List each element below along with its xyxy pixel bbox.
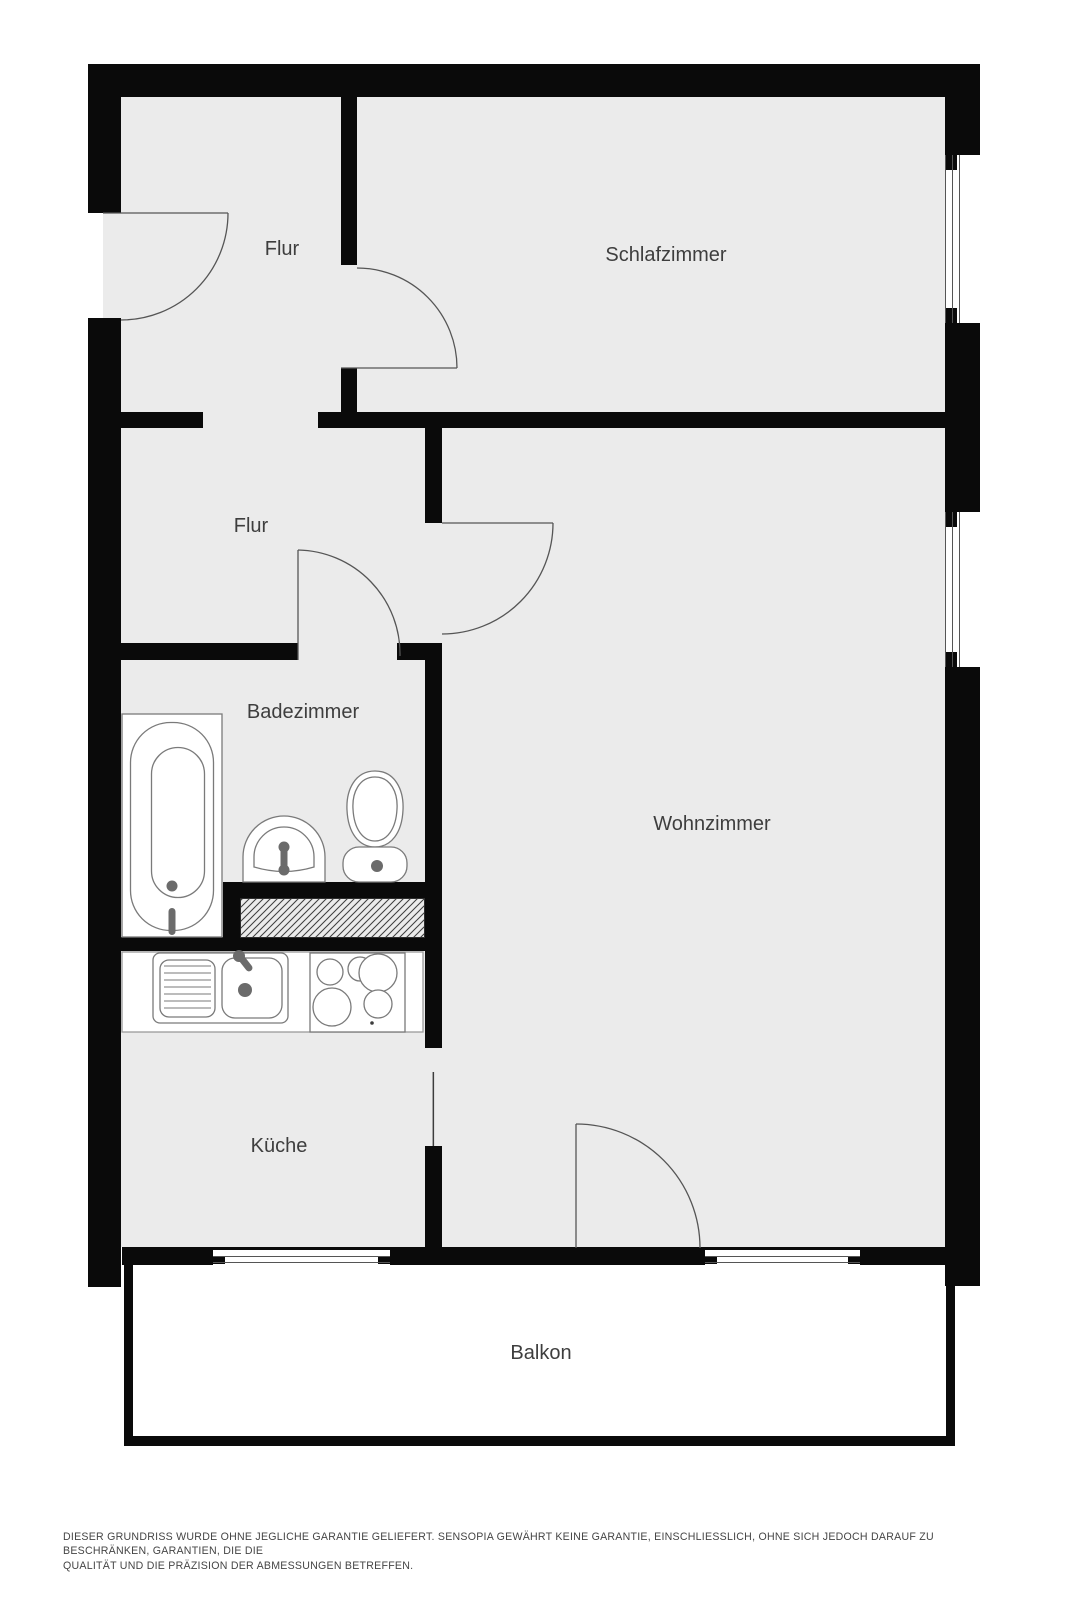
floorplan-canvas: Flur Schlafzimmer Flur Badezimmer Wohnzi…	[0, 0, 1067, 1600]
door-opening-wohnzimmer	[425, 523, 442, 643]
window-stub	[946, 308, 957, 323]
room-floor-flur	[121, 428, 425, 643]
kitchen-counter	[122, 950, 423, 1032]
room-label-wohnzimmer: Wohnzimmer	[653, 813, 771, 835]
door-opening-badezimmer	[298, 643, 397, 660]
room-floor-wohnzimmer	[442, 428, 945, 1247]
toilet-icon	[343, 771, 407, 882]
balkon-border-left	[124, 1265, 133, 1446]
wall-flur-schlafzimmer-upper	[341, 97, 357, 265]
wall-kueche-top	[121, 937, 427, 951]
balkon-border-bottom	[124, 1436, 955, 1446]
room-label-flur-entrance: Flur	[265, 238, 300, 260]
floors	[103, 97, 945, 1265]
window-stub	[946, 512, 957, 527]
window-schlafzimmer	[945, 155, 980, 323]
wall-schlafzimmer-bottom	[318, 412, 945, 428]
disclaimer-text: DIESER GRUNDRISS WURDE OHNE JEGLICHE GAR…	[63, 1530, 1023, 1573]
stove-icon	[310, 953, 405, 1032]
room-floor-flur-entrance	[121, 97, 341, 412]
wall-outer-left-lower	[88, 318, 121, 1287]
wall-kueche-wohnzimmer-lower	[425, 1146, 442, 1247]
room-label-balkon: Balkon	[510, 1342, 571, 1364]
wall-flur-band-left	[121, 412, 203, 428]
wall-outer-top	[88, 64, 980, 97]
disclaimer-line-2: QUALITÄT UND DIE PRÄZISION DER ABMESSUNG…	[63, 1559, 1023, 1573]
room-label-badezimmer: Badezimmer	[247, 701, 360, 723]
window-stub	[946, 155, 957, 170]
wall-outer-left-upper	[88, 64, 121, 213]
room-label-kueche: Küche	[251, 1135, 308, 1157]
kitchen-sink-icon	[153, 950, 288, 1023]
floor-passage-flur	[203, 412, 318, 428]
wall-flur-schlafzimmer-lower	[341, 368, 357, 412]
wall-flur-wohnzimmer-mid	[425, 643, 442, 1048]
window-kueche	[213, 1250, 390, 1270]
room-label-schlafzimmer: Schlafzimmer	[605, 244, 726, 266]
balkon-border-right	[946, 1265, 955, 1446]
duct-hatch	[241, 899, 425, 938]
wall-badezimmer-top-right	[397, 643, 442, 660]
wall-flur-wohnzimmer-upper	[425, 412, 442, 523]
door-opening-entrance	[103, 213, 121, 318]
window-balkon	[705, 1250, 860, 1270]
floorplan-drawing: Flur Schlafzimmer Flur Badezimmer Wohnzi…	[0, 0, 1067, 1600]
wall-badezimmer-top-left	[121, 643, 298, 660]
passage-marker-line	[433, 1072, 435, 1146]
window-stub	[946, 652, 957, 667]
wall-separator-balkon-window	[700, 1247, 705, 1265]
window-wohnzimmer	[945, 512, 980, 667]
wall-badezimmer-bottom	[223, 882, 427, 898]
room-label-flur: Flur	[234, 515, 269, 537]
disclaimer-line-1: DIESER GRUNDRISS WURDE OHNE JEGLICHE GAR…	[63, 1530, 1023, 1559]
door-opening-schlafzimmer	[341, 265, 357, 368]
bathtub-icon	[122, 714, 222, 937]
